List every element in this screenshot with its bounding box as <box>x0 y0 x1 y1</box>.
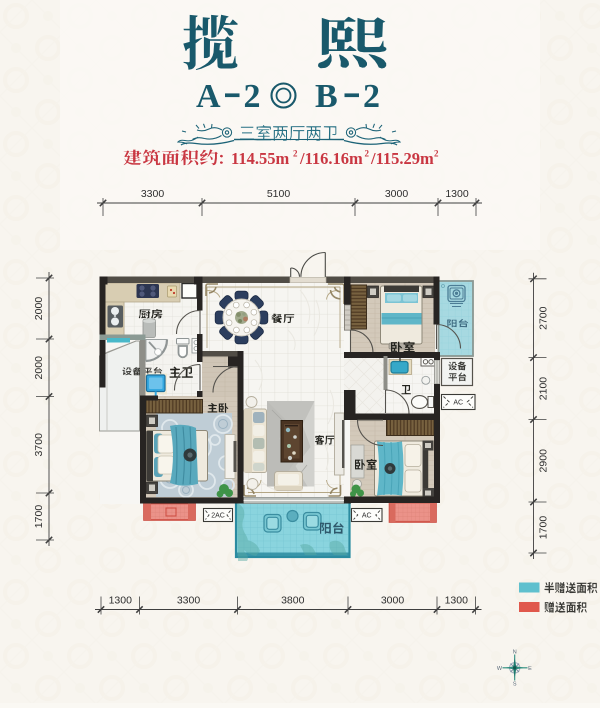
svg-text:N: N <box>513 650 517 656</box>
svg-text:W: W <box>497 666 503 672</box>
svg-text:2: 2 <box>434 149 439 159</box>
svg-text:AC: AC <box>362 513 372 520</box>
svg-text:3000: 3000 <box>385 188 409 200</box>
svg-text:A: A <box>196 78 221 115</box>
svg-text:3300: 3300 <box>177 595 201 607</box>
svg-text:2100: 2100 <box>538 377 550 401</box>
svg-text:/116.16m: /116.16m <box>299 149 363 168</box>
svg-text:2000: 2000 <box>33 356 45 380</box>
svg-text:2900: 2900 <box>538 449 550 473</box>
svg-text:3700: 3700 <box>33 433 45 457</box>
svg-text:E: E <box>528 666 532 672</box>
svg-text:2700: 2700 <box>538 306 550 330</box>
svg-text:114.55m: 114.55m <box>231 149 289 168</box>
svg-text:1300: 1300 <box>109 595 133 607</box>
svg-text:/115.29m: /115.29m <box>370 149 434 168</box>
svg-text:AC: AC <box>453 400 463 407</box>
svg-text:3300: 3300 <box>141 188 165 200</box>
svg-text:2: 2 <box>293 149 298 159</box>
svg-text:1700: 1700 <box>538 516 550 540</box>
svg-text:B: B <box>315 78 338 115</box>
svg-text:3000: 3000 <box>381 595 405 607</box>
svg-text:3800: 3800 <box>281 595 305 607</box>
svg-text:2000: 2000 <box>33 297 45 321</box>
svg-text:S: S <box>513 682 517 688</box>
svg-text:1300: 1300 <box>445 595 469 607</box>
svg-text:2: 2 <box>365 149 370 159</box>
svg-text:2AC: 2AC <box>211 513 225 520</box>
svg-text:1700: 1700 <box>33 505 45 529</box>
svg-text:1300: 1300 <box>445 188 469 200</box>
svg-text:2: 2 <box>363 78 380 115</box>
svg-text:5100: 5100 <box>267 188 291 200</box>
svg-text:2: 2 <box>244 78 261 115</box>
